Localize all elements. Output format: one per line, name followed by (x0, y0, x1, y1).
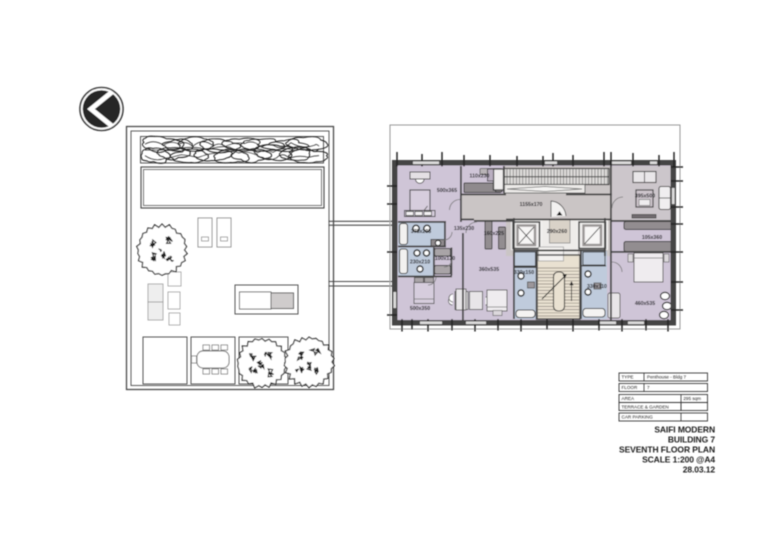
svg-text:BUILDING 7: BUILDING 7 (668, 435, 716, 445)
svg-text:290x260: 290x260 (547, 229, 567, 235)
svg-text:100x130: 100x130 (435, 256, 455, 262)
svg-text:395x500: 395x500 (635, 194, 655, 200)
svg-text:110x230: 110x230 (470, 174, 490, 180)
svg-text:160x225: 160x225 (484, 231, 504, 237)
svg-text:TERRACE & GARDEN: TERRACE & GARDEN (622, 404, 669, 409)
svg-text:135x230: 135x230 (454, 226, 474, 232)
svg-text:SCALE 1:200 @A4: SCALE 1:200 @A4 (642, 455, 715, 465)
svg-text:295 sqm: 295 sqm (683, 396, 701, 401)
svg-text:500x350: 500x350 (410, 306, 430, 312)
svg-text:28.03.12: 28.03.12 (683, 465, 716, 475)
svg-text:AREA: AREA (622, 396, 635, 401)
svg-text:SEVENTH FLOOR PLAN: SEVENTH FLOOR PLAN (619, 445, 715, 455)
svg-text:1155x170: 1155x170 (520, 202, 543, 208)
svg-text:7: 7 (647, 385, 650, 390)
svg-text:FLOOR: FLOOR (622, 385, 639, 390)
svg-text:CAR PARKING: CAR PARKING (622, 415, 654, 420)
svg-text:360x535: 360x535 (479, 267, 499, 273)
svg-text:SAIFI MODERN: SAIFI MODERN (654, 425, 715, 435)
svg-text:105x360: 105x360 (642, 235, 662, 241)
svg-text:330x150: 330x150 (514, 270, 534, 276)
svg-text:375x205: 375x205 (411, 229, 431, 235)
svg-text:460x535: 460x535 (635, 301, 655, 307)
svg-text:500x365: 500x365 (437, 188, 457, 194)
svg-text:Penthouse - Bldg 7: Penthouse - Bldg 7 (647, 374, 687, 379)
svg-text:330x110: 330x110 (587, 284, 607, 290)
svg-text:230x210: 230x210 (410, 260, 430, 266)
svg-text:TYPE: TYPE (622, 374, 634, 379)
